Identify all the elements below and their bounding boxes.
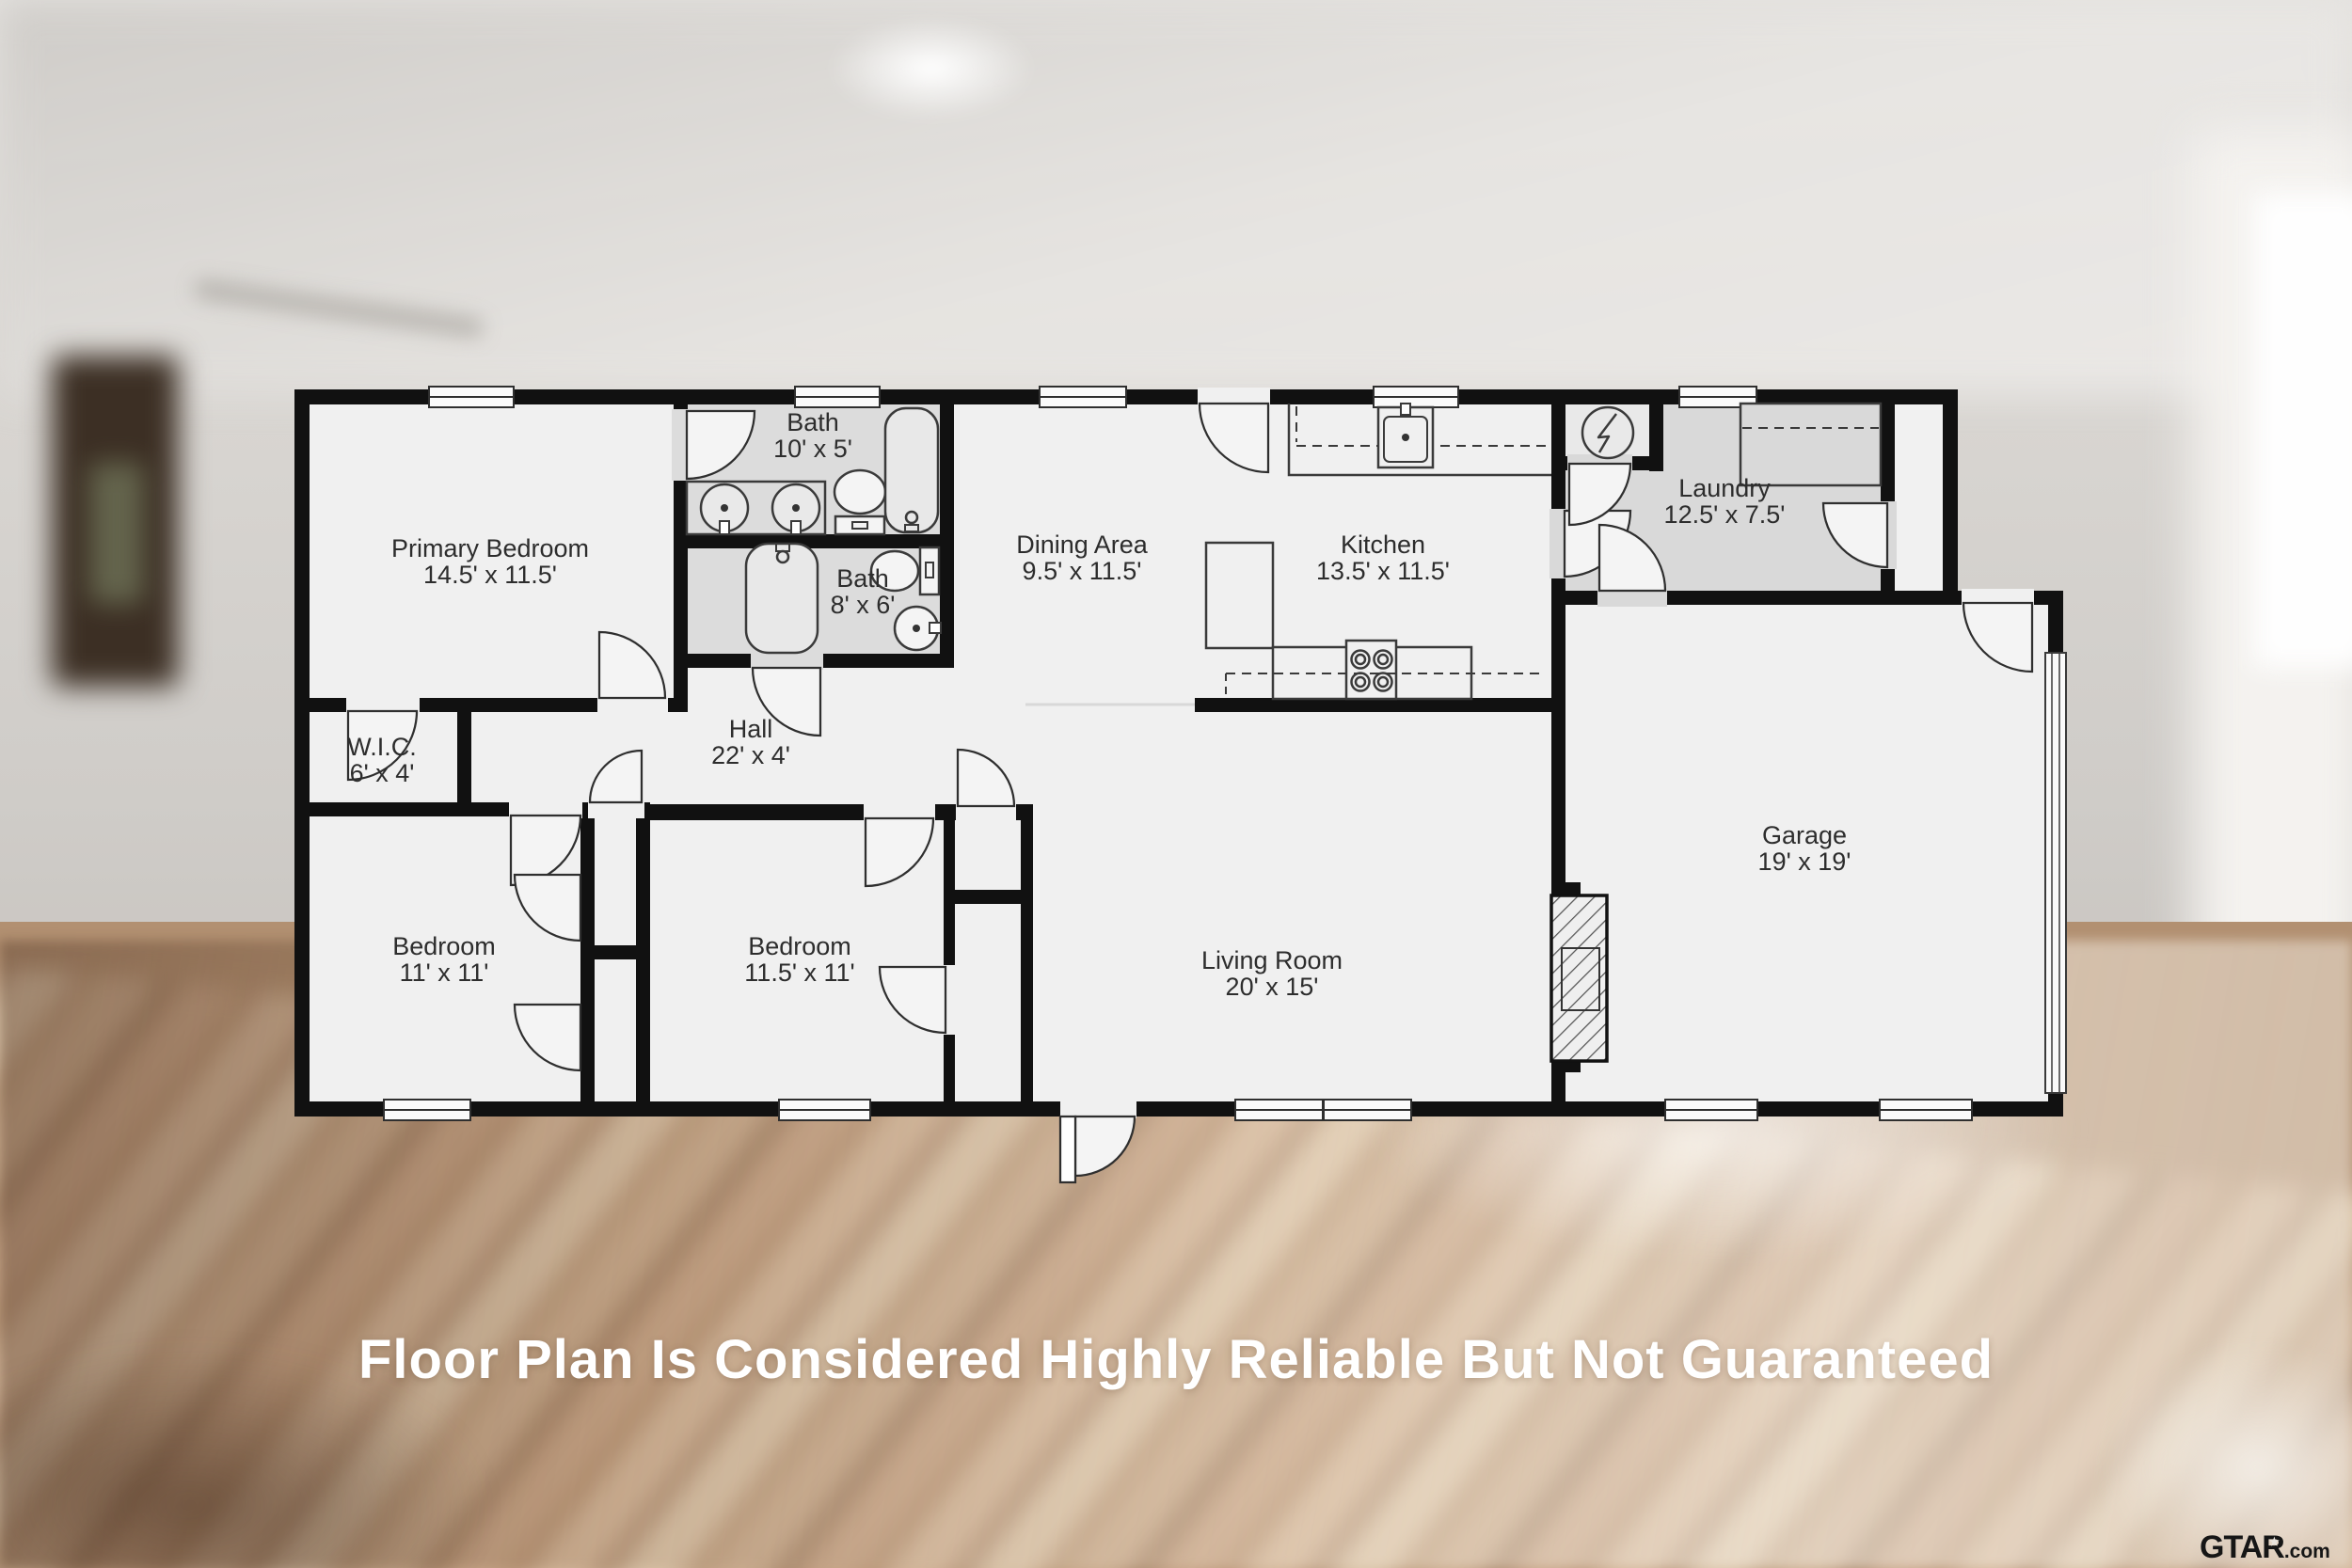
front-door-leaf <box>1060 1117 1075 1182</box>
svg-text:W.I.C.: W.I.C. <box>347 733 417 761</box>
window-bottom-garage-b <box>1880 1100 1972 1120</box>
window-top-bath1 <box>795 387 880 407</box>
svg-text:6' x 4': 6' x 4' <box>350 759 415 787</box>
disclaimer-text: Floor Plan Is Considered Highly Reliable… <box>0 1328 2352 1391</box>
svg-text:11.5' x 11': 11.5' x 11' <box>744 958 854 987</box>
bath1-vanity <box>687 482 825 534</box>
svg-text:22' x 4': 22' x 4' <box>711 741 790 769</box>
window-top-dining <box>1040 387 1126 407</box>
bath2-bathtub <box>746 544 818 653</box>
window-top-primary <box>429 387 514 407</box>
svg-text:Bedroom: Bedroom <box>392 932 496 960</box>
svg-text:Bedroom: Bedroom <box>748 932 851 960</box>
stove-icon <box>1346 641 1396 699</box>
laundry-counter <box>1740 404 1881 485</box>
svg-text:Laundry: Laundry <box>1678 474 1771 502</box>
pantry-floor <box>1894 404 1943 591</box>
room-label-bedroom-2: Bedroom 11.5' x 11' <box>744 932 854 987</box>
svg-text:11' x 11': 11' x 11' <box>400 958 489 987</box>
kitchen-sink <box>1378 404 1433 467</box>
svg-text:Bath: Bath <box>787 408 839 436</box>
room-label-dining-area: Dining Area 9.5' x 11.5' <box>1016 531 1149 585</box>
fireplace <box>1551 895 1607 1061</box>
svg-text:19' x 19': 19' x 19' <box>1758 847 1851 876</box>
window-bottom-bedroom1 <box>384 1100 470 1120</box>
water-heater-icon <box>1582 407 1633 458</box>
kitchen-peninsula <box>1206 543 1273 648</box>
room-label-laundry: Laundry 12.5' x 7.5' <box>1664 474 1786 529</box>
svg-text:13.5' x 11.5': 13.5' x 11.5' <box>1316 557 1450 585</box>
window-bottom-living-b <box>1324 1100 1411 1120</box>
svg-text:8' x 6': 8' x 6' <box>831 591 896 619</box>
svg-text:Bath: Bath <box>836 564 889 593</box>
window-bottom-garage-a <box>1665 1100 1757 1120</box>
gtar-logo: GTAR★.com <box>2200 1529 2330 1566</box>
window-bottom-bedroom2 <box>779 1100 870 1120</box>
room-label-bath-2: Bath 8' x 6' <box>831 564 896 619</box>
bath1-bathtub <box>885 408 938 532</box>
room-label-garage: Garage 19' x 19' <box>1758 821 1851 876</box>
svg-text:Kitchen: Kitchen <box>1341 531 1425 559</box>
svg-text:20' x 15': 20' x 15' <box>1226 973 1319 1001</box>
gtar-tld-text: .com <box>2284 1541 2330 1562</box>
svg-text:Primary Bedroom: Primary Bedroom <box>391 534 589 562</box>
room-label-wic: W.I.C. 6' x 4' <box>347 733 417 787</box>
window-bottom-living-a <box>1235 1100 1323 1120</box>
bath1-toilet <box>834 470 885 534</box>
svg-text:Garage: Garage <box>1762 821 1847 849</box>
garage-door <box>2045 653 2066 1093</box>
window-top-kitchen <box>1374 387 1458 407</box>
svg-text:Living Room: Living Room <box>1201 946 1343 974</box>
svg-text:12.5' x 7.5': 12.5' x 7.5' <box>1664 500 1786 529</box>
svg-text:Dining Area: Dining Area <box>1016 531 1149 559</box>
svg-text:10' x 5': 10' x 5' <box>773 435 852 463</box>
texas-star-icon: ★ <box>2269 1535 2280 1548</box>
front-door-swing <box>1075 1117 1135 1176</box>
screenshot-root: Primary Bedroom 14.5' x 11.5' Bath 10' x… <box>0 0 2352 1568</box>
svg-text:14.5' x 11.5': 14.5' x 11.5' <box>423 561 557 589</box>
room-label-bedroom-1: Bedroom 11' x 11' <box>392 932 496 987</box>
svg-text:Hall: Hall <box>729 715 773 743</box>
svg-text:9.5' x 11.5': 9.5' x 11.5' <box>1023 557 1142 585</box>
